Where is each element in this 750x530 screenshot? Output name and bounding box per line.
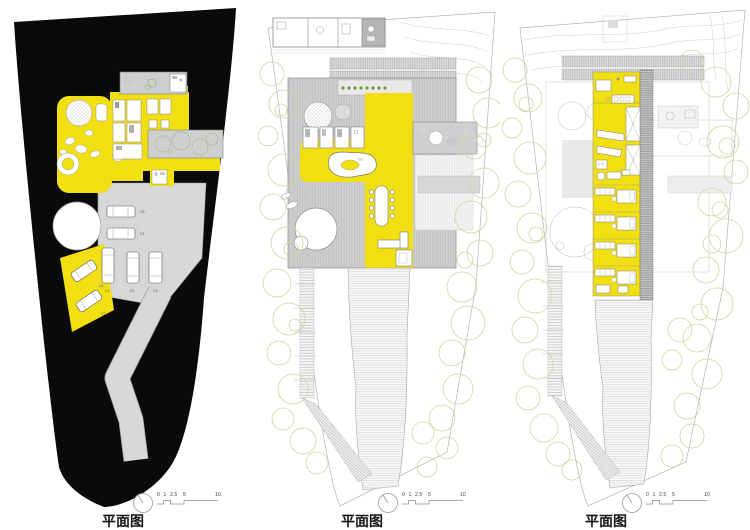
scale-tick: 5 (428, 492, 431, 498)
plan-panel-1: C5 C4 C1 C2 (0, 0, 250, 530)
scale-tick: 1 (164, 492, 167, 498)
plan-panel-3: 0 1 2.5 5 10 平面图 (500, 0, 750, 530)
planter-strip (338, 80, 412, 95)
scale-tick: 10 (460, 492, 466, 498)
scale-bar: 0 1 2.5 5 10 (402, 492, 466, 504)
terrace-tree-icon (304, 102, 332, 130)
plan-1-canvas: C5 C4 C1 C2 (0, 0, 250, 530)
green-roof-bridge (148, 130, 223, 158)
courtyard-tree-icon (66, 100, 92, 126)
scale-tick: 0 (157, 492, 160, 498)
scale-tick: 5 (183, 492, 186, 498)
dining-table (375, 186, 388, 226)
scale-tick: 5 (672, 492, 675, 498)
sofa (378, 240, 402, 248)
sofa (607, 172, 621, 179)
scale-tick: 1 (653, 492, 656, 498)
floor-highlight (593, 72, 640, 296)
terrace-circle (335, 104, 351, 120)
car-label: C6 (99, 284, 103, 288)
coffee-table (597, 172, 605, 180)
north-indicator (623, 494, 642, 513)
north-indicator (379, 494, 398, 513)
plan-title-1: 平面图 (102, 514, 144, 530)
scale-bar: 0 1 2.5 5 10 (157, 492, 221, 504)
roof-terrace-hatched (120, 72, 187, 94)
scale-tick: 10 (704, 492, 710, 498)
plan-panel-2: 0 1 2.5 5 10 平面图 (250, 0, 500, 530)
scale-tick: 2.5 (415, 492, 422, 498)
scale-tick: 2.5 (659, 492, 666, 498)
bridge-walkway (413, 122, 480, 230)
scale-bar: 0 1 2.5 5 10 (646, 492, 710, 504)
car-label: C3 (153, 289, 157, 293)
scale-tick: 2.5 (170, 492, 177, 498)
stair-shaft (626, 107, 640, 175)
scale-tick: 10 (215, 492, 221, 498)
car-label: C2 (130, 289, 134, 293)
car-label: C4 (140, 232, 144, 236)
drawing-sheet: C5 C4 C1 C2 (0, 0, 750, 530)
plan-title-3: 平面图 (585, 514, 627, 530)
plan-3-canvas: 0 1 2.5 5 10 平面图 (500, 0, 750, 530)
scale-tick: 1 (409, 492, 412, 498)
louver-walkway (640, 70, 653, 300)
plan-title-2: 平面图 (341, 514, 383, 530)
pool-small-circle (294, 236, 308, 250)
scale-tick: 0 (402, 492, 405, 498)
water-tank-circle (53, 202, 101, 250)
car-label: C5 (140, 210, 144, 214)
north-indicator (134, 494, 153, 513)
plan-2-canvas: 0 1 2.5 5 10 平面图 (250, 0, 500, 530)
scale-tick: 0 (646, 492, 649, 498)
car-label: C7 (101, 312, 105, 316)
car-label: C1 (105, 289, 109, 293)
